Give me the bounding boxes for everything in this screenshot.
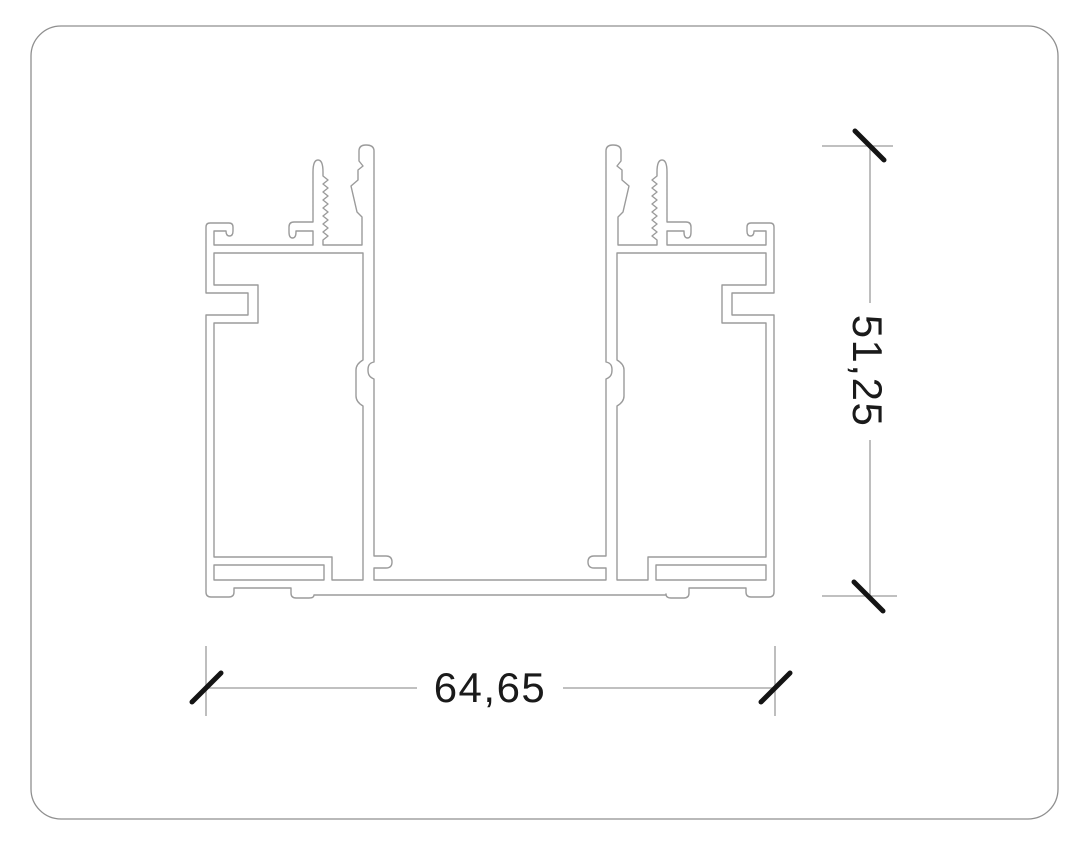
- right-foot-cavity: [656, 565, 766, 580]
- technical-drawing: 64,65 51,25: [0, 0, 1088, 846]
- width-dimension-label: 64,65: [434, 664, 547, 711]
- width-dimension: 64,65: [192, 646, 790, 716]
- profile-outline: [206, 145, 774, 598]
- drawing-canvas: 64,65 51,25: [0, 0, 1088, 846]
- right-chamber-cavity: [617, 253, 766, 580]
- height-dimension: 51,25: [822, 131, 897, 611]
- left-foot-cavity: [214, 565, 324, 580]
- height-dimension-label: 51,25: [844, 315, 891, 428]
- left-chamber-cavity: [214, 253, 363, 580]
